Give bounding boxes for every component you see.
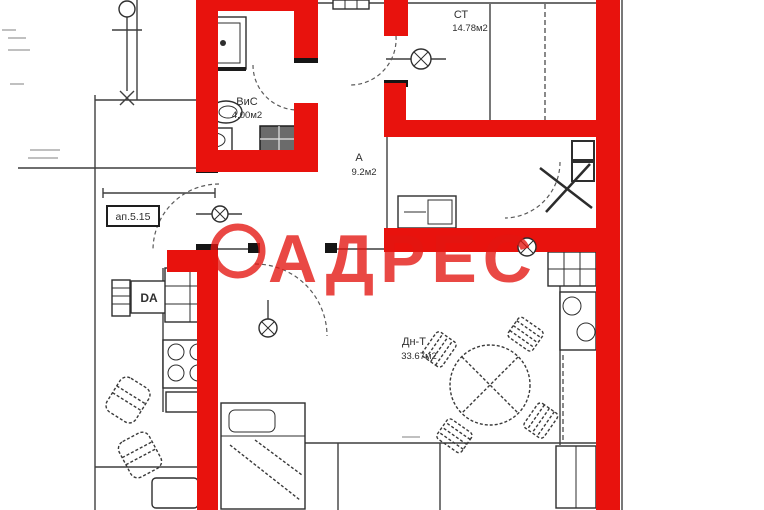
wall-segment [196, 0, 318, 11]
hall-area: 9.2м2 [351, 167, 376, 178]
survey-marker-icon [119, 1, 135, 17]
unit-number: ап.5.15 [116, 211, 151, 223]
unit-number-plate: ап.5.15 [107, 206, 159, 226]
riser-symbol [259, 319, 277, 337]
watermark-text: АДРЕС [268, 221, 538, 297]
window-symbol [333, 0, 369, 9]
wall-segment [596, 0, 620, 510]
washing-machine [260, 126, 298, 152]
wall-segment [384, 120, 598, 137]
adres-watermark: АДРЕС [214, 221, 538, 297]
wall-segment [384, 0, 408, 36]
armchair [103, 374, 153, 426]
side-table [152, 478, 198, 508]
dining-table [421, 316, 559, 454]
living-area: 33.67м2 [401, 351, 437, 362]
chair [522, 401, 559, 439]
riser-symbol [212, 206, 228, 222]
hall-label: А [355, 152, 363, 164]
floor-plan: ВиС 4.00м2 СТ 14.78м2 А 9.2м2 Дн-Т 33.67… [0, 0, 764, 510]
wall-segment [196, 150, 318, 172]
armchair [116, 429, 165, 480]
closet-shelves [572, 141, 594, 181]
wall-segment [294, 103, 318, 152]
wall-segment [167, 250, 197, 272]
wall-segment [197, 250, 218, 510]
kitchen-cabinets [548, 252, 596, 286]
living-label: Дн-Т [402, 336, 426, 348]
right-wall-cabinet [556, 446, 596, 508]
bathroom-label: ВиС [236, 96, 257, 108]
wall-segment [196, 0, 218, 172]
room-st-label: СТ [454, 9, 469, 21]
hanger-cross-icon [540, 164, 592, 212]
wall-segment [294, 11, 318, 58]
floorplan-screenshot: ВиС 4.00м2 СТ 14.78м2 А 9.2м2 Дн-Т 33.67… [0, 0, 764, 510]
chair [421, 330, 458, 368]
riser-symbol [411, 49, 431, 69]
appliance-label: DA [140, 291, 158, 305]
kitchen-sink [560, 292, 596, 350]
chair [506, 316, 544, 353]
chair [435, 417, 473, 454]
shower-drain [220, 40, 226, 46]
bathroom-area: 4.00м2 [232, 110, 262, 121]
room-st-area: 14.78м2 [452, 23, 488, 34]
bed [221, 403, 305, 509]
